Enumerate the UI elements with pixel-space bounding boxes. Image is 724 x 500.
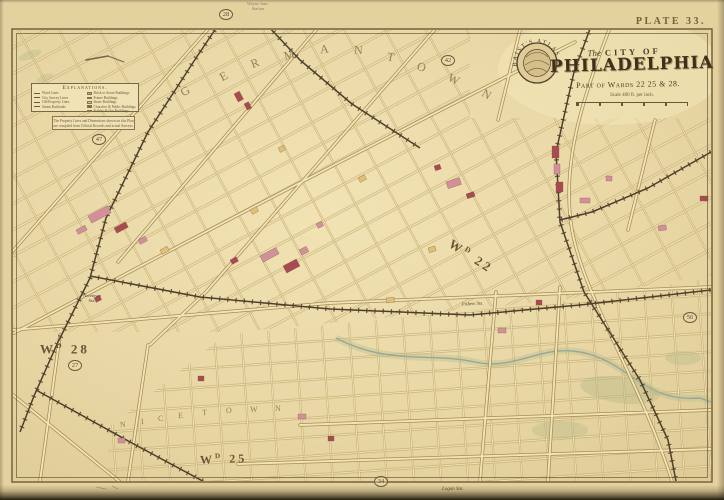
- page-edge-left: [0, 0, 4, 500]
- nicetown-letter: T: [202, 408, 207, 417]
- nicetown-letter: C: [158, 414, 164, 423]
- color-swatch: [87, 105, 92, 108]
- ward-prefix: W: [40, 341, 56, 356]
- ward-number: 25: [229, 451, 247, 466]
- labels-layer: PLATE 33. TheCITY OF PHILADELPHIA Part o…: [0, 0, 724, 500]
- atlas-page: BAIST'S ATLAS PLATE 33. TheCITY OF PHILA…: [0, 0, 724, 500]
- ward-sup: D: [56, 341, 65, 350]
- surveyor-note-box: The Property Lines and Dimensions shown …: [52, 116, 135, 130]
- germantown-letter: W: [445, 70, 462, 88]
- legend-left-column: Ward Lines City Survey Lines Old Propert…: [34, 91, 84, 113]
- legend-item-label: Steam Railroads: [42, 105, 66, 109]
- page-edge-top: [0, 0, 724, 3]
- nicetown-letter: N: [275, 404, 281, 413]
- ward-label-22: WD 22: [446, 236, 497, 277]
- ward-sup: D: [215, 452, 223, 460]
- line-swatch: [34, 106, 40, 107]
- legend-item: Steam Railroads: [34, 105, 84, 109]
- station-label-nicetown: Nicetown Sta.: [72, 293, 112, 304]
- germantown-letter: M: [282, 47, 296, 64]
- germantown-letter: T: [386, 49, 396, 65]
- germantown-letter: E: [217, 68, 231, 85]
- adjoining-plate-ref: 47: [92, 134, 106, 145]
- title-wards-line: Part of Wards 22 25 & 28.: [552, 79, 704, 91]
- line-swatch: [34, 93, 40, 94]
- germantown-letter: N: [354, 43, 363, 58]
- ward-prefix: W: [200, 452, 215, 467]
- title-philadelphia: PHILADELPHIA: [550, 53, 702, 77]
- color-swatch: [87, 92, 92, 95]
- germantown-letter: G: [178, 83, 193, 100]
- station-name: Station: [226, 6, 290, 11]
- scale-bar: [576, 102, 688, 106]
- legend-box: Explanations. Ward Lines City Survey Lin…: [31, 83, 139, 112]
- ward-number: 22: [472, 253, 496, 276]
- ward-prefix: W: [446, 236, 468, 257]
- page-edge-right: [717, 0, 724, 500]
- ward-number: 28: [71, 341, 90, 356]
- note-line: The Property Lines and Dimensions shown …: [53, 119, 134, 124]
- nicetown-letter: I: [141, 417, 144, 426]
- legend-right-column: Brick or Stone Buildings Frame Buildings…: [87, 91, 137, 113]
- legend-item-label: Stables & Out Buildings: [94, 109, 129, 113]
- adjoining-plate-ref: 56: [683, 312, 697, 323]
- legend-item: Stables & Out Buildings: [87, 109, 137, 113]
- page-edge-bottom: [0, 485, 724, 500]
- color-swatch: [87, 97, 92, 100]
- nicetown-letter: E: [178, 411, 183, 420]
- line-swatch: [34, 102, 40, 103]
- station-label-fishers: Fishers Sta.: [462, 300, 484, 306]
- ward-label-25: WD 25: [200, 451, 248, 468]
- nicetown-letter: O: [226, 406, 232, 415]
- color-swatch: [87, 110, 92, 113]
- germantown-letter: R: [248, 55, 261, 72]
- plate-number-label: PLATE 33.: [560, 16, 706, 27]
- nicetown-letter: W: [250, 405, 258, 414]
- adjoining-plate-ref: 42: [441, 55, 455, 66]
- nicetown-letter: N: [120, 420, 126, 429]
- scale-text: Scale 400 ft. per inch.: [576, 93, 688, 98]
- line-swatch: [34, 97, 40, 98]
- germantown-letter: A: [319, 42, 329, 58]
- note-line: are compiled from Official Records and a…: [53, 124, 134, 129]
- color-swatch: [87, 101, 92, 104]
- ward-label-28: WD 28: [40, 341, 90, 357]
- germantown-letter: O: [415, 59, 428, 76]
- germantown-letter: N: [479, 86, 494, 103]
- station-name: Sta.: [72, 298, 112, 303]
- adjoining-plate-ref: 27: [68, 360, 82, 371]
